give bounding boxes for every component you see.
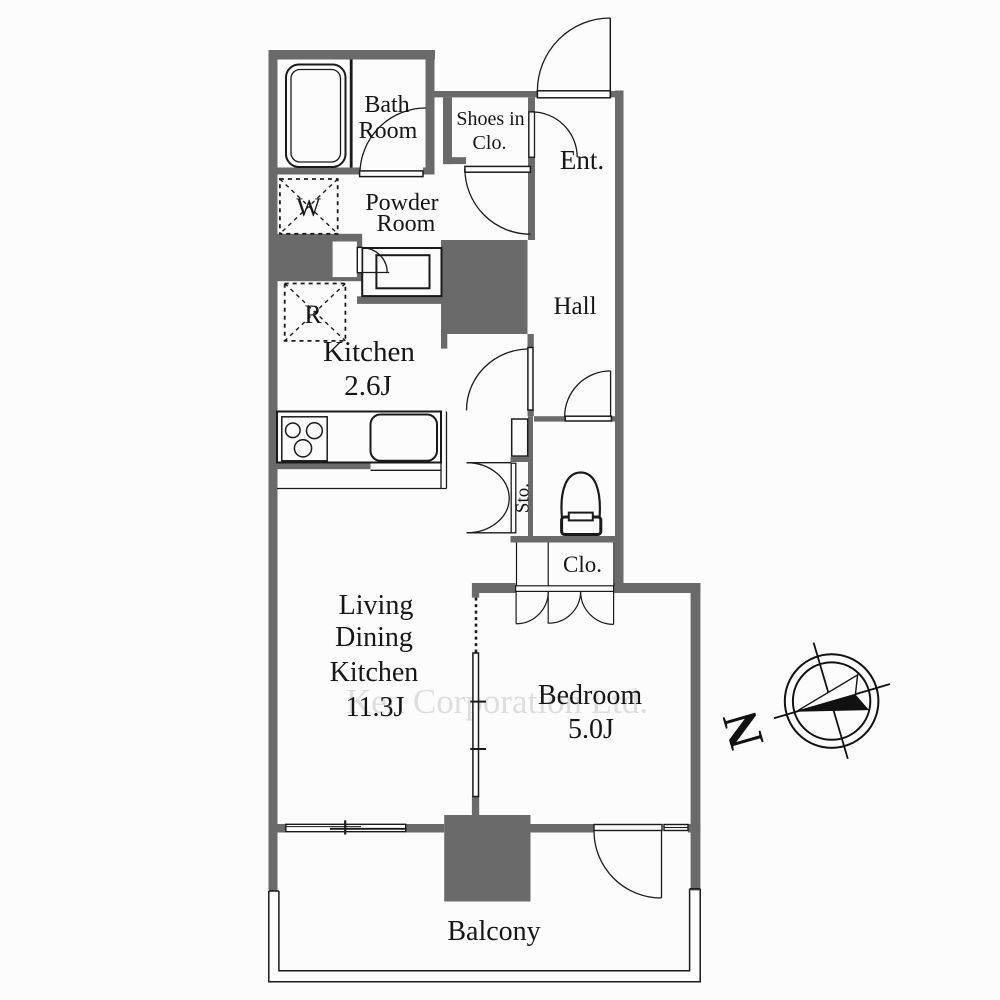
svg-text:Clo.: Clo. — [563, 552, 602, 577]
svg-text:Kitchen: Kitchen — [323, 336, 415, 368]
svg-text:Room: Room — [359, 118, 418, 144]
svg-text:Balcony: Balcony — [447, 916, 540, 947]
svg-text:Bedroom: Bedroom — [538, 680, 642, 711]
svg-text:Sto.: Sto. — [513, 483, 534, 513]
svg-text:Hall: Hall — [553, 293, 596, 320]
svg-text:Dining: Dining — [335, 622, 413, 653]
svg-text:Ent.: Ent. — [560, 145, 604, 175]
svg-text:Shoes in: Shoes in — [456, 108, 524, 130]
svg-text:5.0J: 5.0J — [568, 714, 614, 745]
svg-text:11.3J: 11.3J — [346, 692, 405, 723]
svg-text:Living: Living — [339, 590, 414, 621]
svg-text:Room: Room — [377, 211, 436, 237]
svg-text:R: R — [304, 300, 322, 329]
svg-text:Clo.: Clo. — [473, 132, 507, 154]
svg-text:2.6J: 2.6J — [344, 370, 392, 402]
svg-text:Bath: Bath — [364, 92, 409, 118]
svg-text:Kitchen: Kitchen — [330, 657, 419, 688]
svg-text:W: W — [296, 193, 321, 222]
